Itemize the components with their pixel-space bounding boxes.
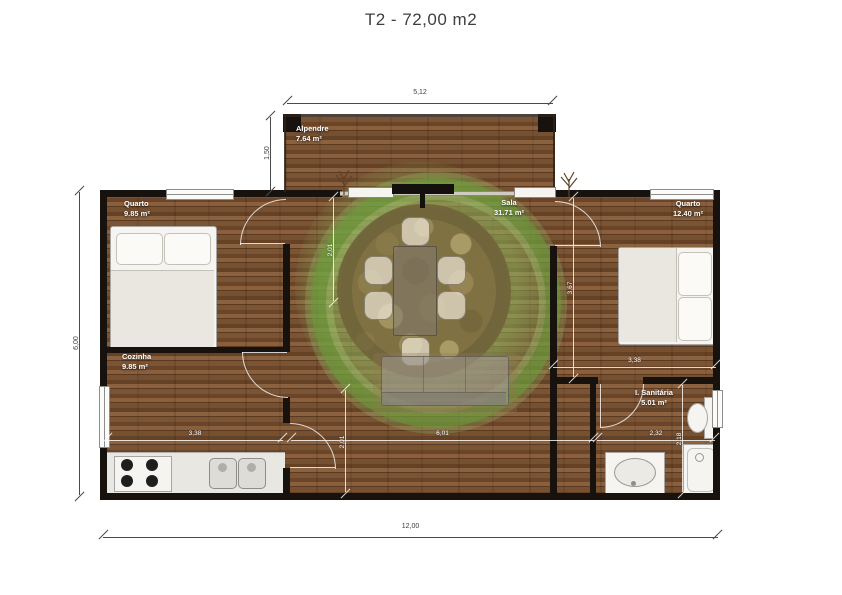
dimension-total-depth: 6,00 (73, 323, 85, 363)
dimension-total-width-line (103, 537, 718, 538)
wall-interior-right (550, 246, 557, 493)
room-name: Sala (480, 198, 538, 208)
door-leaf-bedroom2 (555, 245, 600, 246)
sofa-seat-divider (465, 356, 466, 392)
dimension-bedroom2-depth: 3,67 (567, 268, 579, 308)
dining-table (393, 246, 437, 336)
pillow (678, 252, 712, 296)
room-label-sanitaria: I. Sanitária 5.01 m² (620, 388, 688, 408)
dimension-sala-width-line (291, 440, 594, 441)
dimension-bathroom-width-line (597, 440, 715, 441)
door-leaf-kitchen (242, 352, 287, 353)
wall-interior-left (283, 244, 290, 352)
chair (364, 256, 393, 285)
dimension-sala-bottom: 2,01 (339, 422, 351, 462)
faucet (631, 481, 636, 486)
dimension-total-width: 12,00 (103, 523, 718, 530)
sofa-seat-divider (423, 356, 424, 392)
wall-top-left (100, 190, 166, 197)
wall-interior-left (283, 468, 290, 493)
porch-edge-right (553, 114, 555, 192)
wall-left (100, 190, 107, 386)
door-leaf-sala (290, 467, 335, 468)
entrance-door-handle (420, 194, 425, 208)
dimension-sala-top: 2,01 (327, 230, 339, 270)
dimension-porch-width-line (287, 103, 553, 104)
chair (437, 291, 466, 320)
room-area: 9.85 m² (124, 209, 150, 219)
sofa-backrest (382, 392, 506, 405)
room-area: 31.71 m² (480, 208, 538, 218)
door-leaf-bathroom (600, 384, 601, 427)
pillow (116, 233, 163, 265)
kitchen-sink-basin (209, 458, 237, 489)
burner (121, 475, 133, 487)
door-leaf-bedroom1 (240, 243, 285, 244)
room-label-quarto2: Quarto 12.40 m² (658, 199, 718, 219)
room-name: Alpendre (296, 124, 329, 134)
room-name: Quarto (658, 199, 718, 209)
dimension-bedroom2-width-line (553, 367, 716, 368)
duvet (111, 270, 214, 348)
window-bathroom (712, 390, 723, 428)
wall-left (100, 446, 107, 500)
page-title: T2 - 72,00 m2 (0, 10, 842, 30)
wall-interior-left (283, 397, 290, 423)
plant-icon (333, 168, 355, 201)
room-label-alpendre: Alpendre 7.64 m² (296, 124, 329, 144)
dimension-bedroom2-width: 3,38 (553, 357, 716, 364)
duvet (619, 248, 677, 342)
room-area: 5.01 m² (620, 398, 688, 408)
dimension-sala-width: 6,01 (291, 430, 594, 437)
window-bedroom1 (166, 189, 234, 200)
kitchen-sink-basin (238, 458, 266, 489)
room-name: Cozinha (122, 352, 151, 362)
room-area: 12.40 m² (658, 209, 718, 219)
wall-bottom (100, 493, 720, 500)
dimension-bathroom-depth: 2,18 (676, 419, 688, 459)
pillow (164, 233, 211, 265)
plant-icon (558, 170, 580, 203)
burner (146, 459, 158, 471)
room-area: 9.85 m² (122, 362, 151, 372)
dimension-kitchen-width: 3,38 (107, 430, 283, 437)
room-name: I. Sanitária (620, 388, 688, 398)
dimension-porch-depth: 1,50 (264, 133, 276, 173)
chair (364, 291, 393, 320)
room-label-quarto1: Quarto 9.85 m² (124, 199, 150, 219)
dimension-porch-width: 5,12 (287, 89, 553, 96)
wall-top-left (232, 190, 290, 197)
porch-edge-top (283, 114, 556, 117)
burner (121, 459, 133, 471)
floor-plan: T2 - 72,00 m2 (0, 0, 842, 595)
dimension-bathroom-width: 2,32 (597, 430, 715, 437)
porch-edge-left (284, 114, 286, 192)
burner (146, 475, 158, 487)
shower-drain (695, 453, 704, 462)
entrance-glass-panel (514, 187, 556, 198)
entrance-door-leaf (392, 184, 454, 194)
room-label-cozinha: Cozinha 9.85 m² (122, 352, 151, 372)
dimension-kitchen-width-line (107, 440, 283, 441)
toilet-bowl (687, 403, 708, 433)
pillow (678, 297, 712, 341)
chair (401, 217, 430, 246)
room-label-sala: Sala 31.71 m² (480, 198, 538, 218)
room-area: 7.64 m² (296, 134, 329, 144)
chair (437, 256, 466, 285)
room-name: Quarto (124, 199, 150, 209)
